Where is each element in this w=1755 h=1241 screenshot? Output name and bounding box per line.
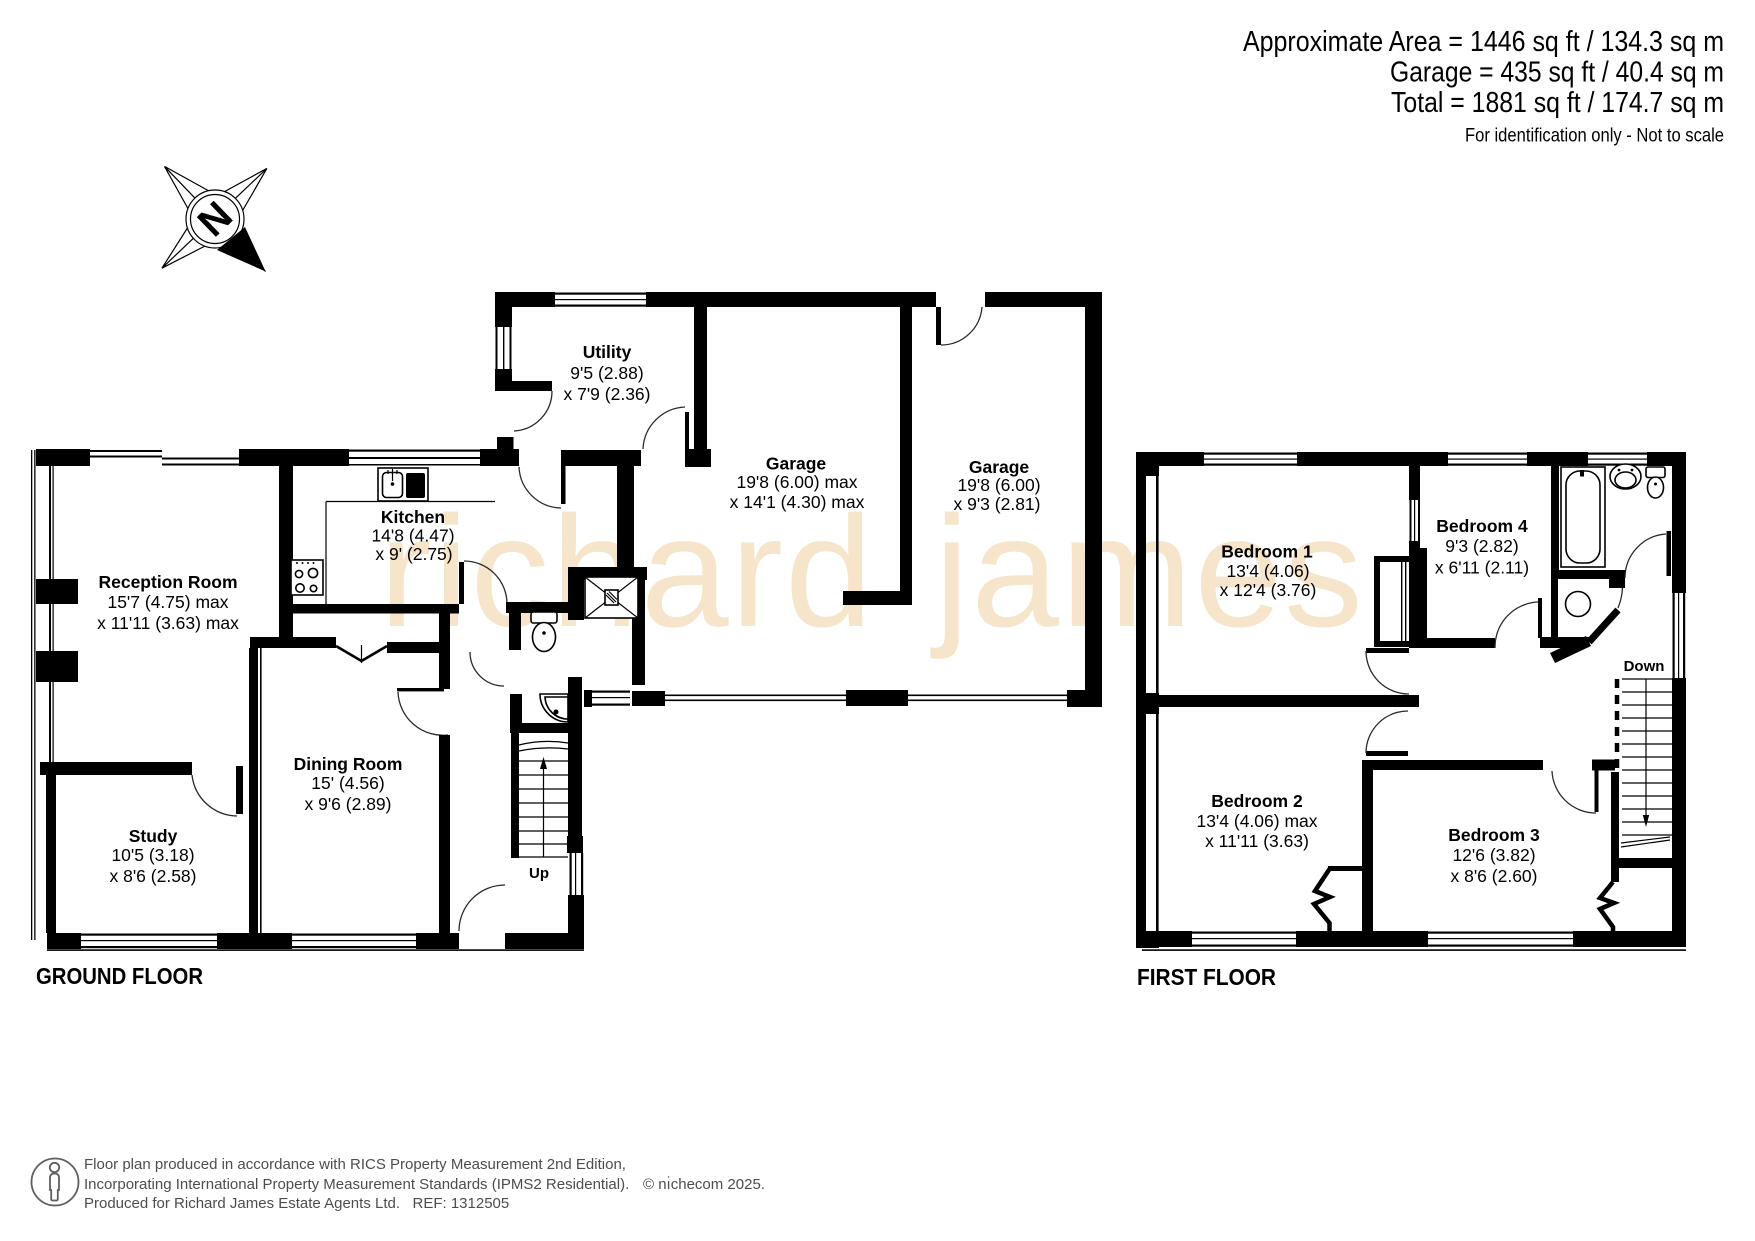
svg-text:14'8 (4.47): 14'8 (4.47)	[371, 526, 454, 546]
svg-text:Bedroom 2: Bedroom 2	[1211, 791, 1303, 811]
svg-text:Approximate Area = 1446 sq ft: Approximate Area = 1446 sq ft / 134.3 sq…	[1243, 26, 1724, 58]
svg-text:x 11'11 (3.63): x 11'11 (3.63)	[1205, 831, 1309, 851]
svg-text:15' (4.56): 15' (4.56)	[311, 773, 384, 793]
svg-text:x 9'6 (2.89): x 9'6 (2.89)	[305, 794, 392, 814]
svg-text:Kitchen: Kitchen	[381, 507, 445, 527]
svg-text:Dining Room: Dining Room	[294, 754, 403, 774]
svg-text:Utility: Utility	[583, 342, 632, 362]
svg-text:Bedroom 1: Bedroom 1	[1221, 542, 1313, 562]
svg-text:Study: Study	[129, 826, 178, 846]
svg-text:GROUND FLOOR: GROUND FLOOR	[36, 963, 203, 989]
svg-text:FIRST FLOOR: FIRST FLOOR	[1137, 964, 1276, 990]
svg-text:© nı̇checom 2025.: © nı̇checom 2025.	[643, 1176, 765, 1193]
svg-text:Down: Down	[1624, 658, 1665, 675]
svg-text:9'5 (2.88): 9'5 (2.88)	[570, 363, 643, 383]
svg-text:x 7'9 (2.36): x 7'9 (2.36)	[564, 384, 651, 404]
svg-text:x 9' (2.75): x 9' (2.75)	[375, 544, 452, 564]
svg-text:Reception Room: Reception Room	[98, 572, 237, 592]
svg-text:Total = 1881 sq ft / 174.7 sq: Total = 1881 sq ft / 174.7 sq m	[1391, 87, 1724, 119]
svg-text:Bedroom 3: Bedroom 3	[1448, 825, 1540, 845]
svg-text:19'8 (6.00): 19'8 (6.00)	[957, 475, 1040, 495]
svg-text:15'7 (4.75) max: 15'7 (4.75) max	[107, 592, 228, 612]
svg-text:12'6 (3.82): 12'6 (3.82)	[1452, 845, 1535, 865]
svg-text:13'4 (4.06): 13'4 (4.06)	[1226, 561, 1309, 581]
svg-text:Produced for Richard James Est: Produced for Richard James Estate Agents…	[84, 1195, 509, 1212]
svg-text:Incorporating International Pr: Incorporating International Property Mea…	[84, 1176, 629, 1193]
svg-text:x 9'3 (2.81): x 9'3 (2.81)	[954, 494, 1041, 514]
svg-text:10'5 (3.18): 10'5 (3.18)	[111, 845, 194, 865]
svg-text:x 11'11 (3.63) max: x 11'11 (3.63) max	[97, 613, 239, 633]
svg-text:For identification only - Not: For identification only - Not to scale	[1465, 125, 1724, 147]
svg-text:Floor plan produced in accorda: Floor plan produced in accordance with R…	[84, 1156, 626, 1173]
svg-text:richard james: richard james	[379, 484, 1365, 660]
svg-text:Up: Up	[529, 865, 549, 882]
svg-text:Bedroom 4: Bedroom 4	[1436, 516, 1528, 536]
svg-text:x 12'4 (3.76): x 12'4 (3.76)	[1220, 580, 1317, 600]
svg-text:Garage = 435 sq ft / 40.4 sq m: Garage = 435 sq ft / 40.4 sq m	[1390, 57, 1724, 89]
svg-text:Garage: Garage	[766, 454, 827, 474]
svg-text:x 8'6 (2.58): x 8'6 (2.58)	[110, 866, 197, 886]
svg-text:9'3 (2.82): 9'3 (2.82)	[1445, 536, 1518, 556]
svg-text:19'8 (6.00) max: 19'8 (6.00) max	[736, 472, 857, 492]
svg-text:x 6'11 (2.11): x 6'11 (2.11)	[1435, 558, 1529, 578]
svg-text:Garage: Garage	[969, 457, 1030, 477]
svg-text:x 8'6 (2.60): x 8'6 (2.60)	[1451, 866, 1538, 886]
svg-text:13'4 (4.06) max: 13'4 (4.06) max	[1196, 811, 1317, 831]
svg-text:x 14'1 (4.30) max: x 14'1 (4.30) max	[730, 492, 865, 512]
